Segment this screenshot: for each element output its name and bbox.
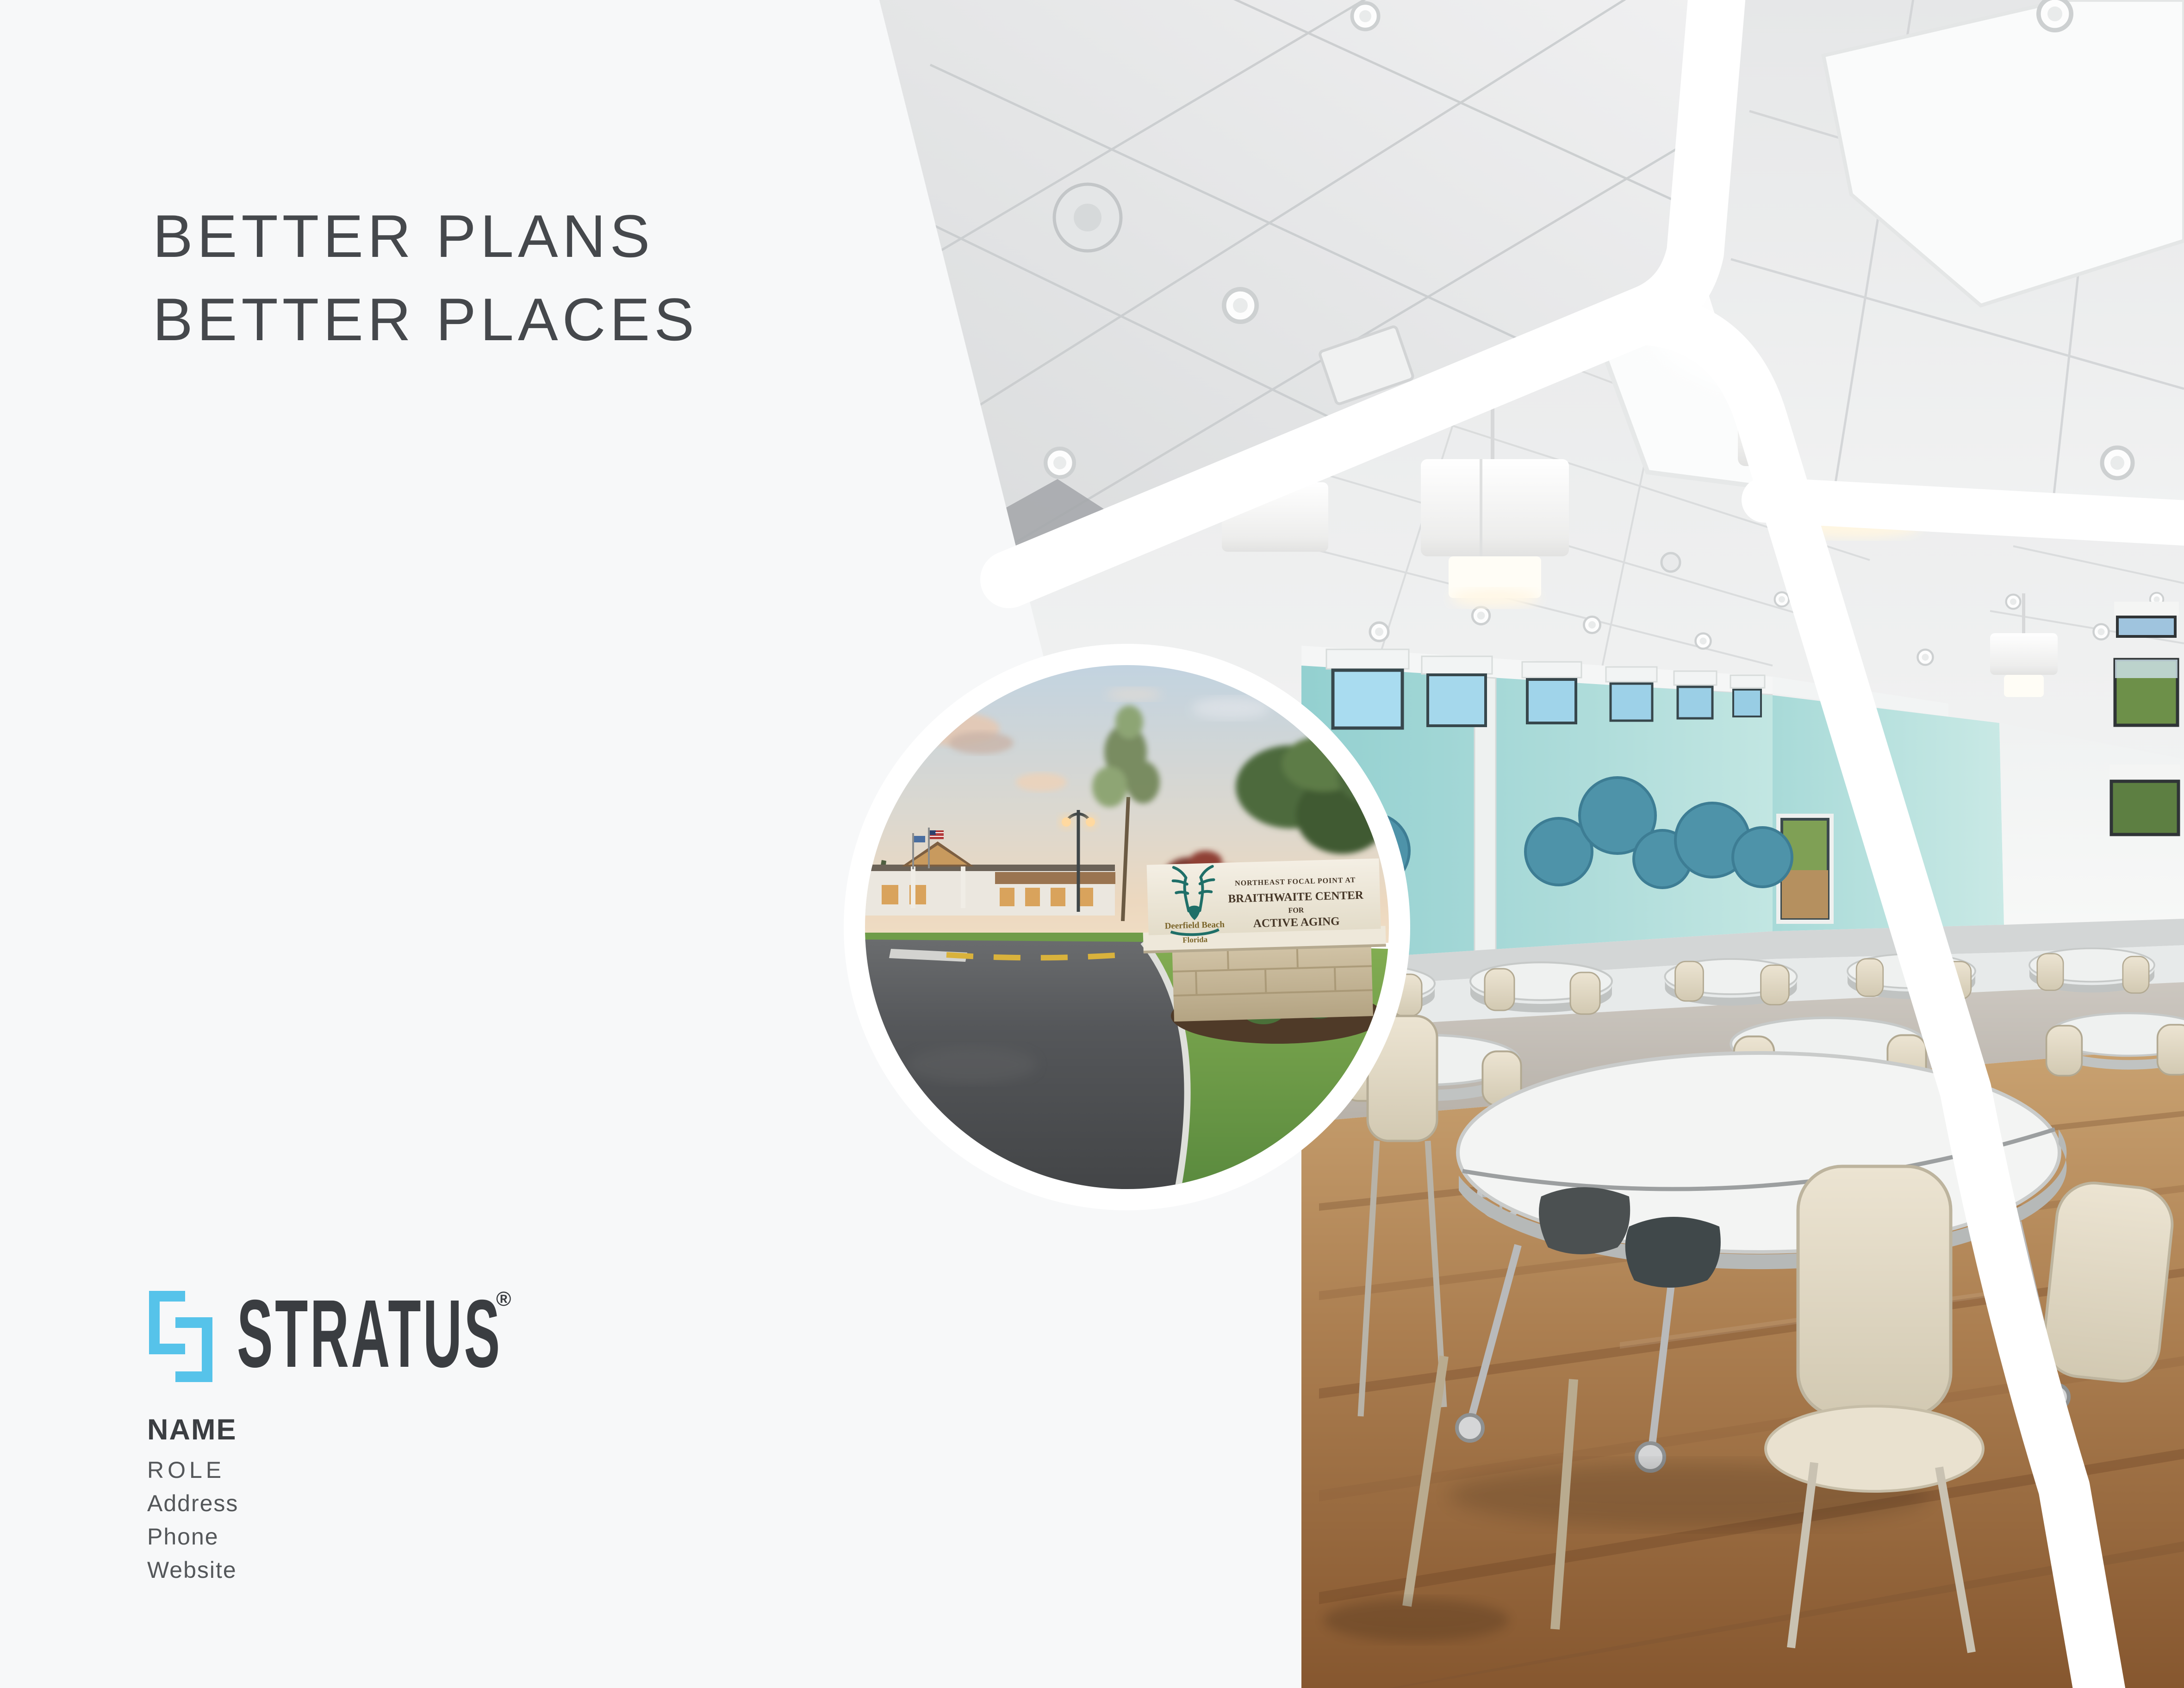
sign-line3: FOR xyxy=(1288,906,1304,915)
contact-address: Address xyxy=(147,1487,238,1520)
registered-trademark: ® xyxy=(496,1288,511,1311)
headline-line1: BETTER PLANS xyxy=(153,194,698,278)
monument-sign: Deerfield Beach Florida NORTHEAST FOCAL … xyxy=(1141,858,1388,1022)
interlocking-brackets-icon xyxy=(149,1291,214,1383)
contact-website: Website xyxy=(147,1553,238,1587)
brochure-cover: Deerfield Beach Florida NORTHEAST FOCAL … xyxy=(0,0,2184,1688)
brand-wordmark: STRATUS xyxy=(237,1287,502,1382)
headline: BETTER PLANS BETTER PLACES xyxy=(153,194,698,361)
right-wall-windows xyxy=(2109,602,2180,835)
inset-photo-circle: Deerfield Beach Florida NORTHEAST FOCAL … xyxy=(844,644,1410,1210)
contact-phone: Phone xyxy=(147,1520,238,1553)
sign-state: Florida xyxy=(1182,935,1208,945)
sign-line4: ACTIVE AGING xyxy=(1253,915,1340,930)
contact-role: ROLE xyxy=(147,1453,238,1487)
headline-line2: BETTER PLACES xyxy=(153,278,698,361)
contact-name: NAME xyxy=(147,1413,238,1447)
sign-municipality: Deerfield Beach xyxy=(1164,920,1225,931)
contact-block: NAME ROLE Address Phone Website xyxy=(147,1413,238,1587)
